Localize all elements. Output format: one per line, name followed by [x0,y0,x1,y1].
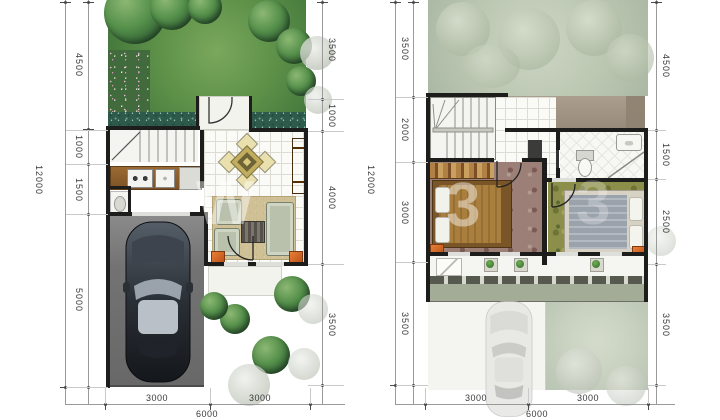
gf-tick [317,2,328,3]
gf-ext-line [308,264,344,265]
uf-ext-line [648,385,666,386]
uf-ext-line [648,130,666,131]
gf-back-terrace [208,266,282,296]
uf-wall-under-roof [505,128,648,132]
uf-ext-line [648,264,666,265]
gf-wall-bath-h [106,186,131,189]
gf-staircase-treads [110,130,198,162]
uf-ext-line [396,162,428,163]
uf-dimline-bottom [395,404,675,405]
gf-wall-right [304,128,308,266]
gf-window-back-1 [224,262,248,266]
gf-wall-porch-left [196,96,199,130]
gf-wall-living-top [249,128,308,132]
gf-wall-bath-v [128,188,131,214]
gf-ext-line [310,388,311,404]
uf-dim-right-1: 4500 [661,54,671,78]
uf-ext-line [425,388,426,404]
uf-balcony-plant-1 [484,258,498,272]
uf-ext-line [528,388,529,404]
gf-fridge-icon [179,167,201,190]
gf-terrace-door-icon [226,234,256,264]
uf-ext-line [648,388,649,404]
gf-dim-left-1: 4500 [74,53,84,77]
gf-wall-kitchen-divider [200,130,204,188]
uf-balcony-plant-3 [590,258,604,272]
uf-ext-line [396,97,428,98]
uf-dim-left-1: 3500 [400,37,410,61]
gf-ext-line [66,387,108,388]
uf-dim-left-4: 3500 [400,312,410,336]
gf-garage-bottom-edge [110,385,204,387]
uf-garden-blotch-4 [606,34,654,82]
gf-hedge-right [252,112,306,128]
gf-dim-right-1: 3500 [327,38,337,62]
uf-bedroom2-door-gap [552,178,576,182]
gf-garage-door [132,212,190,216]
uf-dim-total-height: 12000 [366,165,376,195]
floor-plan-canvas: W 3 3 12000 4500 1000 1500 5000 3500 100… [0,0,720,420]
gf-sofa [266,202,294,256]
gf-dimline-bottom [65,404,345,405]
gf-back-bush-4 [200,292,228,320]
uf-staircase [430,97,496,160]
uf-bedroom1-pillow-1 [435,187,450,213]
uf-balcony-plant-2 [514,258,528,272]
uf-wall-top [426,93,508,97]
gf-ext-line [210,388,211,404]
gf-dimline-left [88,0,89,404]
gf-ext-line [308,131,344,132]
uf-bedroom1-wardrobe [430,163,494,179]
uf-ghost-bush-2 [606,366,646,406]
gf-ext-line [66,130,108,131]
gf-back-bush-gray-2 [288,348,320,380]
gf-dim-bottom-1: 3000 [146,393,168,403]
uf-ghost-bush-1 [556,348,602,394]
uf-bedroom1-door-icon [494,160,524,190]
uf-shower-screen [606,150,646,180]
uf-hall-cabinet [528,140,542,160]
gf-ext-line [66,214,108,215]
gf-ext-line [308,99,344,100]
gf-entry-door-icon [206,97,236,127]
uf-washbasin-icon [616,134,642,151]
gf-dim-right-3: 4000 [327,186,337,210]
uf-bedroom1-pillow-2 [435,217,450,243]
gf-washbasin-icon [114,196,126,212]
uf-bedroom2-door-icon [550,182,578,210]
uf-toilet-bowl-icon [578,158,592,177]
gf-dim-total-width: 6000 [196,409,218,419]
gf-car [122,220,194,384]
uf-wall-bedroom1-top-a [426,158,494,162]
gf-tick [83,2,94,3]
uf-balcony-door-gap-4 [600,252,622,256]
uf-dimline-outer-left [395,0,396,404]
gf-dim-bottom-2: 3000 [249,393,271,403]
gf-wall-stairs-top [106,126,200,130]
uf-dim-right-3: 2500 [661,210,671,234]
uf-wall-balcony-right [644,252,648,302]
uf-wall-balcony-left [426,252,430,302]
uf-dim-right-4: 3500 [661,313,671,337]
gf-dim-left-4: 5000 [74,288,84,312]
uf-bedroom1-bed [432,180,512,248]
gf-armchair-1 [216,199,242,225]
gf-sink-icon [155,169,175,188]
uf-dim-right-2: 1500 [661,143,671,167]
gf-dim-left-3: 1500 [74,178,84,202]
gf-outer-bush-3 [298,294,328,324]
gf-flower-bed-left [108,50,150,118]
uf-dim-bottom-1: 3000 [465,393,487,403]
gf-ext-line [308,385,344,386]
gf-dim-total-height: 12000 [34,165,44,195]
gf-dimline-right [322,0,323,404]
uf-bedroom2-pillow-1 [629,197,643,221]
gf-dim-left-2: 1000 [74,135,84,159]
uf-ext-line [648,179,666,180]
gf-window-back-2 [256,262,284,266]
uf-bath-door-leaf [556,150,559,170]
uf-balcony-door-gap-2 [500,252,520,256]
uf-tick [651,2,662,3]
uf-balcony-door-gap-3 [556,252,578,256]
gf-ext-line [105,388,106,404]
uf-dim-left-3: 3000 [400,201,410,225]
uf-staircase-treads [431,98,495,159]
gf-wall-left [106,126,110,388]
gf-dim-right-2: 1000 [327,104,337,128]
uf-dimline-left [413,0,414,404]
gf-dim-right-4: 3500 [327,313,337,337]
uf-entry-roof-edge [626,96,645,129]
uf-ext-line [396,385,428,386]
gf-ext-line [66,164,108,165]
uf-dim-total-width: 6000 [526,409,548,419]
uf-dim-bottom-2: 3000 [577,393,599,403]
uf-ground-below-divider [545,302,546,390]
uf-tick [408,2,419,3]
uf-garden-blotch-5 [462,44,520,88]
uf-balcony-door-gap-1 [448,252,470,256]
uf-tick [390,2,401,3]
uf-dimline-right [656,0,657,404]
gf-dimline-outer-left [65,0,66,404]
gf-staircase [110,130,198,162]
uf-wall-bedroom-divider [542,158,547,265]
gf-wall-porch-right [249,96,252,130]
uf-balcony-railing [430,276,644,284]
uf-dim-left-2: 2000 [400,118,410,142]
uf-balcony-table [436,258,462,276]
uf-wall-bath-left-a [556,132,560,150]
gf-wall-garage-living [204,216,208,266]
uf-ext-line [396,262,428,263]
gf-tick [60,2,71,3]
uf-balcony-floor [430,256,644,276]
